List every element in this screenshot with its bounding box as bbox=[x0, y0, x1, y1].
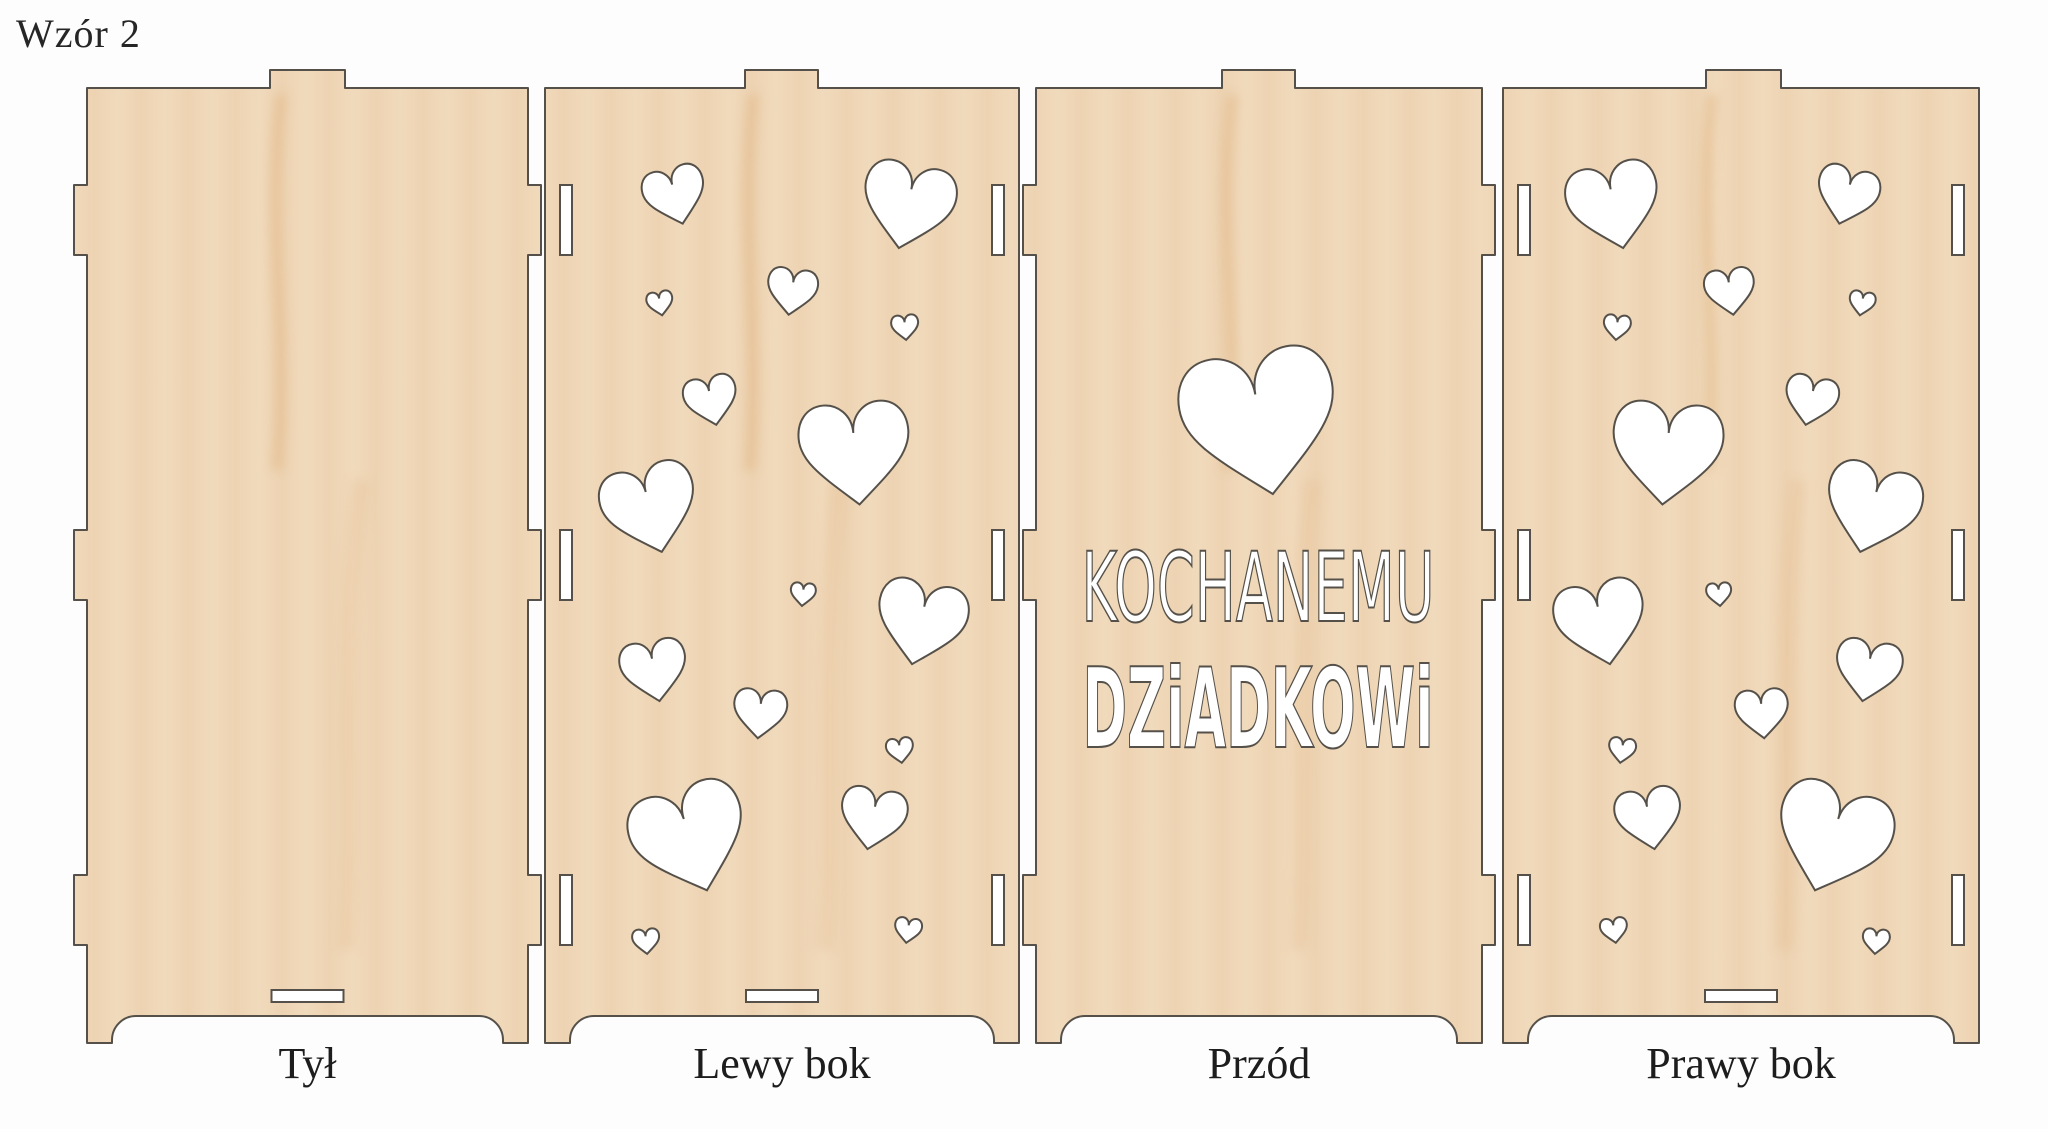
bottom-slot bbox=[1705, 990, 1777, 1002]
panel-left-side bbox=[545, 70, 1019, 1043]
bottom-slot bbox=[272, 990, 344, 1002]
panel-label-front: Przód bbox=[1036, 1036, 1482, 1092]
joint-slot bbox=[560, 530, 572, 600]
bottom-slot bbox=[746, 990, 818, 1002]
joint-slot bbox=[1952, 530, 1964, 600]
front-text-line-2: DZiADKOWi bbox=[1083, 645, 1434, 774]
panel-label-back: Tył bbox=[87, 1036, 528, 1092]
joint-slot bbox=[992, 185, 1004, 255]
joint-slot bbox=[1518, 875, 1530, 945]
joint-slot bbox=[992, 530, 1004, 600]
front-text-line-1: KOCHANEMU bbox=[1082, 532, 1435, 644]
joint-slot bbox=[560, 875, 572, 945]
panel-right-side bbox=[1503, 70, 1979, 1043]
joint-slot bbox=[992, 875, 1004, 945]
template-sheet-drawing: KOCHANEMUDZiADKOWi bbox=[0, 0, 2048, 1129]
panel-back bbox=[74, 70, 541, 1043]
joint-slot bbox=[560, 185, 572, 255]
joint-slot bbox=[1518, 530, 1530, 600]
joint-slot bbox=[1952, 185, 1964, 255]
joint-slot bbox=[1952, 875, 1964, 945]
panel-label-right-side: Prawy bok bbox=[1503, 1036, 1979, 1092]
panel-label-left-side: Lewy bok bbox=[545, 1036, 1019, 1092]
panel-front: KOCHANEMUDZiADKOWi bbox=[1023, 70, 1495, 1043]
joint-slot bbox=[1518, 185, 1530, 255]
